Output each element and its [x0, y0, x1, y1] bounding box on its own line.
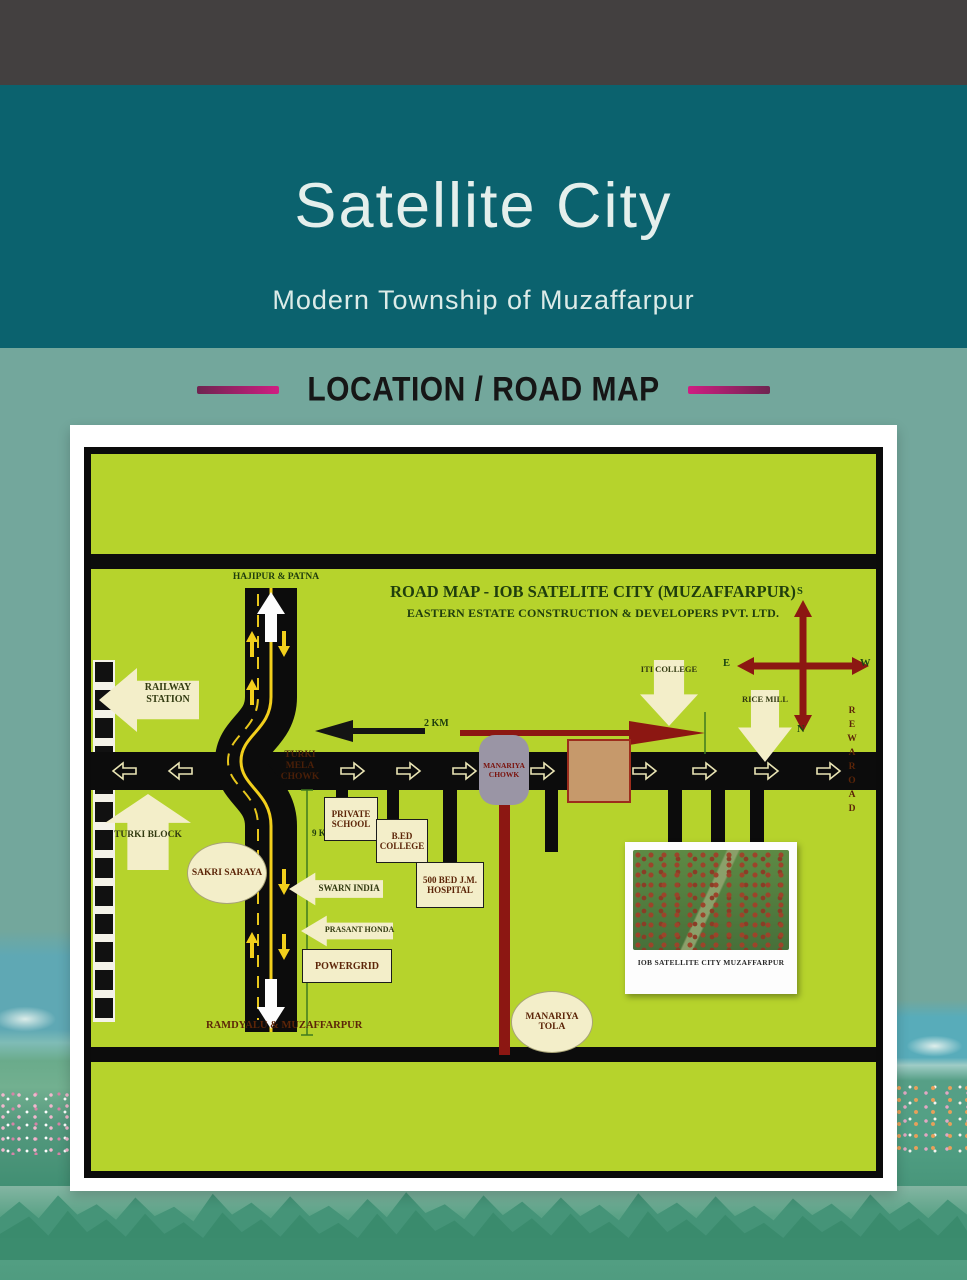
accent-line-left [197, 386, 279, 394]
road-network [91, 454, 876, 1171]
section-heading: LOCATION / ROAD MAP [0, 364, 967, 416]
road-map-canvas: ROAD MAP - IOB SATELITE CITY (MUZAFFARPU… [84, 447, 883, 1178]
accent-line-right [688, 386, 770, 394]
map-developer: EASTERN ESTATE CONSTRUCTION & DEVELOPERS… [383, 606, 803, 621]
prasant-honda-arrow: PRASANT HONDA [301, 915, 393, 947]
compass-letter-left: E [723, 658, 730, 669]
township-aerial-photo [633, 850, 789, 950]
map-title: ROAD MAP - IOB SATELITE CITY (MUZAFFARPU… [383, 582, 803, 602]
destination-hajipur-patna: HAJIPUR & PATNA [221, 572, 331, 582]
highway-north-south [228, 588, 290, 1032]
bottom-road [91, 1047, 876, 1062]
meadow-illustration-left [0, 930, 72, 1192]
sakri-saraya-ellipse: SAKRI SARAYA [187, 842, 267, 904]
grass-illustration-bottom [0, 1186, 967, 1280]
meadow-illustration-right [895, 1000, 967, 1192]
powergrid-sign: POWERGRID [302, 949, 392, 983]
top-bar [0, 0, 967, 85]
section-heading-text: LOCATION / ROAD MAP [307, 370, 659, 409]
compass-letter-bottom: N [797, 724, 805, 735]
iti-college-arrow: ITI COLLEGE [640, 660, 698, 726]
flower-field-left [0, 1092, 72, 1155]
page-title: Satellite City [0, 170, 967, 242]
road-map-panel: ROAD MAP - IOB SATELITE CITY (MUZAFFARPU… [70, 425, 897, 1191]
swarn-india-arrow: SWARN INDIA [289, 872, 383, 906]
rice-mill-arrow: RICE MILL [738, 690, 792, 762]
rewa-road-label: REWAROAD [846, 706, 857, 811]
junction-turki-mela-chowk: TURKI MELA CHOWK [275, 750, 325, 783]
compass-letter-top: S [797, 586, 803, 597]
photo-caption: IOB SATELLITE CITY MUZAFFARPUR [633, 950, 789, 967]
turki-block-arrow: TURKI BLOCK [105, 794, 191, 870]
bed-college-sign: B.ED COLLEGE [376, 819, 428, 863]
destination-ramdyalu-muzaffarpur: RAMDYALU & MUZAFFARPUR [206, 1020, 362, 1031]
satellite-city-marker [567, 739, 631, 803]
jm-hospital-sign: 500 BED J.M. HOSPITAL [416, 862, 484, 908]
top-road [91, 554, 876, 569]
distance-2km: 2 KM [424, 718, 449, 729]
manariya-road [499, 794, 510, 1055]
compass-letter-right: W [860, 658, 871, 669]
nine-km-line [301, 790, 313, 1035]
private-school-sign: PRIVATE SCHOOL [324, 797, 378, 841]
page-subtitle: Modern Township of Muzaffarpur [0, 285, 967, 316]
flower-field-right [895, 1084, 967, 1153]
township-photo-inset: IOB SATELLITE CITY MUZAFFARPUR [625, 842, 797, 994]
manariya-tola-ellipse: MANARIYA TOLA [511, 991, 593, 1053]
brochure-page: Satellite City Modern Township of Muzaff… [0, 0, 967, 1280]
railway-station-arrow: RAILWAY STATION [99, 668, 199, 732]
junction-manariya-chowk: MANARIYA CHOWK [479, 735, 529, 805]
